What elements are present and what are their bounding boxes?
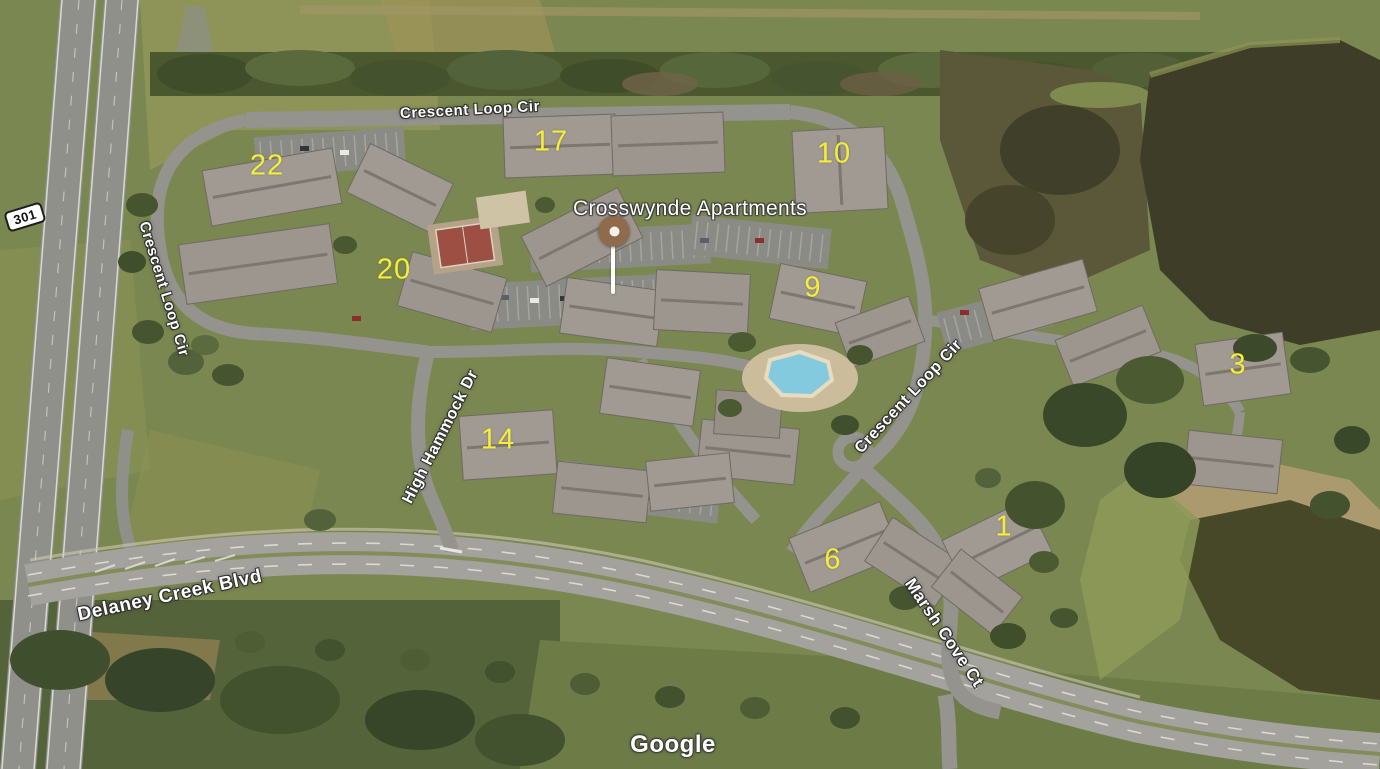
building-number-14: 14 <box>481 424 515 457</box>
place-marker-dot-center <box>609 226 619 236</box>
place-label[interactable]: Crosswynde Apartments <box>573 197 807 221</box>
building-number-9: 9 <box>804 272 821 305</box>
building-number-22: 22 <box>250 150 284 183</box>
building-number-3: 3 <box>1229 349 1246 382</box>
building-number-10: 10 <box>817 138 851 171</box>
building-number-6: 6 <box>824 544 841 577</box>
building-number-1: 1 <box>995 511 1012 544</box>
satellite-map-viewport[interactable]: 301 Crosswynde Apartments Crescent Loop … <box>0 0 1380 769</box>
satellite-imagery <box>0 0 1380 769</box>
swimming-pool <box>766 352 832 396</box>
building-number-20: 20 <box>377 254 411 287</box>
place-marker-stem <box>611 246 615 294</box>
google-logo[interactable]: Google <box>630 731 716 759</box>
building-number-17: 17 <box>534 126 568 159</box>
